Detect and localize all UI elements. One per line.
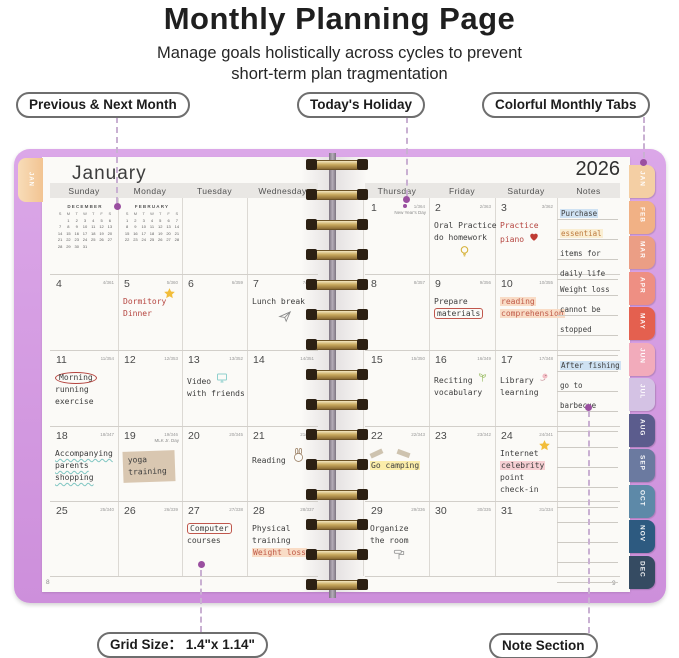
mini-calendar-day: 28 — [173, 237, 181, 242]
spiral-ring-cap — [306, 519, 317, 530]
notes-line: Purchase — [557, 200, 618, 220]
weekday-header-right: ThursdayFridaySaturdayNotes — [365, 183, 620, 198]
month-tab-nov: NOV — [629, 520, 655, 553]
handwritten-note: Go camping — [370, 448, 428, 472]
mini-calendar-day: 4 — [89, 218, 97, 223]
handwritten-note: Preparematerials — [434, 296, 494, 320]
callout-todays-holiday: Today's Holiday — [297, 92, 425, 118]
mini-calendar-day: 14 — [173, 224, 181, 229]
left-jan-tab: JAN — [18, 158, 43, 202]
day-number: 18 — [56, 430, 68, 442]
weekday-sunday: Sunday — [50, 183, 118, 198]
day-number: 29 — [371, 505, 383, 517]
mini-calendar-dow: T — [140, 211, 148, 216]
holiday-label: New Year's Day — [394, 210, 426, 215]
weekday-header-left: SundayMondayTuesdayWednesday — [50, 183, 318, 198]
mini-calendar-dow: W — [148, 211, 156, 216]
day-of-year-fraction: 13/352 — [229, 356, 243, 361]
handwritten-note: Oral Practicedo homework — [434, 220, 494, 262]
day-cell-10: 1010/355readingcomprehension — [495, 274, 557, 350]
spiral-ring — [306, 279, 368, 290]
mini-calendar-day: 25 — [89, 237, 97, 242]
mini-calendar-dow: M — [64, 211, 72, 216]
month-tab-jul: JUL — [629, 378, 655, 411]
spiral-ring — [306, 459, 368, 470]
day-cell-2: 22/363Oral Practicedo homework — [429, 198, 495, 274]
month-tab-label: SEP — [639, 455, 646, 476]
callout-colorful-monthly-tabs: Colorful Monthly Tabs — [482, 92, 650, 118]
spiral-ring-cap — [306, 429, 317, 440]
day-of-year-fraction: 22/343 — [411, 432, 425, 437]
day-cell-17: 1717/348Library learning — [495, 350, 557, 426]
day-of-year-fraction: 26/339 — [164, 507, 178, 512]
sprout-icon — [477, 376, 488, 385]
handwritten-note: Internetcelebritypointcheck-in — [500, 448, 556, 496]
handwritten-note: Morningrunningexercise — [55, 372, 117, 408]
handwritten-note: Library learning — [500, 372, 556, 399]
spiral-ring-cap — [357, 489, 368, 500]
spiral-ring-cap — [306, 369, 317, 380]
spiral-ring-cap — [357, 279, 368, 290]
mini-calendar-day: 3 — [81, 218, 89, 223]
callout-grid-size: Grid Size： 1.4"x 1.14" — [97, 632, 268, 658]
day-of-year-fraction: 15/350 — [411, 356, 425, 361]
mini-calendar-day: 17 — [81, 231, 89, 236]
day-of-year-fraction: 2/363 — [480, 204, 491, 209]
bunny-icon — [291, 456, 306, 465]
spiral-ring-cap — [357, 339, 368, 350]
handwritten-note: Video with friends — [187, 372, 246, 400]
day-of-year-fraction: 8/357 — [414, 280, 425, 285]
mini-calendar-day: 18 — [89, 231, 97, 236]
spiral-ring-cap — [357, 309, 368, 320]
day-number: 20 — [188, 430, 200, 442]
spiral-ring-bar — [312, 400, 362, 410]
mini-calendar-day: 23 — [131, 237, 139, 242]
mini-calendar-day: 8 — [64, 224, 72, 229]
mini-calendar-title: DECEMBER — [56, 204, 114, 209]
day-cell-22: 2222/343Go camping — [365, 426, 429, 501]
mini-calendar-day: 19 — [97, 231, 105, 236]
day-of-year-fraction: 1/364 — [414, 204, 425, 209]
mini-calendar-day: 23 — [73, 237, 81, 242]
spiral-ring — [306, 189, 368, 200]
mini-calendar-dow: M — [131, 211, 139, 216]
day-of-year-fraction: 16/349 — [477, 356, 491, 361]
spiral-ring-cap — [357, 399, 368, 410]
spiral-ring-bar — [312, 580, 362, 590]
mini-calendar-day: 12 — [156, 224, 164, 229]
mini-calendar-dow: F — [97, 211, 105, 216]
mini-calendar-day: 9 — [73, 224, 81, 229]
month-tab-oct: OCT — [629, 485, 655, 518]
day-number: 9 — [435, 278, 441, 290]
spiral-ring-bar — [312, 220, 362, 230]
month-tab-dec: DEC — [629, 556, 655, 589]
mini-calendar-day: 13 — [106, 224, 114, 229]
grid-hline — [50, 576, 318, 577]
day-of-year-fraction: 31/334 — [539, 507, 553, 512]
spiral-ring — [306, 489, 368, 500]
notes-line: stopped — [557, 316, 618, 336]
day-cell-1: 11/364New Year's Day — [365, 198, 429, 274]
mini-calendar-dow: S — [56, 211, 64, 216]
day-of-year-fraction: 27/338 — [229, 507, 243, 512]
mini-calendar-day: 26 — [156, 237, 164, 242]
mini-calendar-title: FEBRUARY — [123, 204, 181, 209]
day-cell-25: 2525/340 — [50, 501, 118, 576]
day-number: 23 — [435, 430, 447, 442]
month-tab-label: JUL — [639, 384, 646, 404]
mini-calendar-day: 16 — [131, 231, 139, 236]
mini-calendar-day: 10 — [140, 224, 148, 229]
day-number: 14 — [253, 354, 265, 366]
day-number: 21 — [253, 430, 265, 442]
day-number: 11 — [56, 354, 67, 366]
month-tab-jan: JAN — [629, 165, 655, 198]
day-of-year-fraction: 29/336 — [411, 507, 425, 512]
mini-calendar-february: FEBRUARYSMTWTFS1234567891011121314151617… — [123, 204, 181, 242]
day-number: 12 — [124, 354, 136, 366]
weekday-tuesday: Tuesday — [182, 183, 247, 198]
mini-calendar-dow: T — [156, 211, 164, 216]
leader-dot-note-section — [585, 404, 592, 411]
mini-calendar-day: 18 — [148, 231, 156, 236]
mini-calendar-day — [89, 244, 97, 249]
day-of-year-fraction: 5/360 — [167, 280, 178, 285]
left-jan-tab-label: JAN — [28, 172, 34, 187]
spiral-ring-cap — [357, 549, 368, 560]
holiday-label: MLK Jr. Day — [154, 438, 179, 443]
mini-calendar-day: 9 — [131, 224, 139, 229]
day-of-year-fraction: 25/340 — [100, 507, 114, 512]
spiral-ring-cap — [357, 579, 368, 590]
day-cell-16: 1616/349Reciting vocabulary — [429, 350, 495, 426]
heart-icon — [529, 235, 539, 244]
month-tab-label: MAY — [639, 313, 646, 335]
callout-note-section: Note Section — [489, 633, 598, 658]
mini-calendar-day: 20 — [106, 231, 114, 236]
spiral-ring — [306, 429, 368, 440]
day-of-year-fraction: 30/335 — [477, 507, 491, 512]
spiral-ring — [306, 219, 368, 230]
day-number: 27 — [188, 505, 200, 517]
spiral-ring — [306, 519, 368, 530]
mini-calendar-day: 25 — [148, 237, 156, 242]
day-cell-31: 3131/334 — [495, 501, 557, 576]
spiral-ring — [306, 579, 368, 590]
month-tab-label: JUN — [639, 348, 646, 369]
day-cell-26: 2626/339 — [118, 501, 182, 576]
day-number: 3 — [501, 202, 507, 214]
mini-calendar-day: 14 — [56, 231, 64, 236]
spiral-ring-cap — [306, 159, 317, 170]
mini-calendar-day: 26 — [97, 237, 105, 242]
mini-calendar-day: 2 — [73, 218, 81, 223]
mini-calendar-day: 20 — [164, 231, 172, 236]
leader-dot-grid-size — [198, 561, 205, 568]
spiral-ring-cap — [306, 459, 317, 470]
mini-calendar-day: 24 — [81, 237, 89, 242]
month-tab-apr: APR — [629, 272, 655, 305]
day-of-year-fraction: 9/356 — [480, 280, 491, 285]
mini-calendar-day: 7 — [173, 218, 181, 223]
day-number: 16 — [435, 354, 447, 366]
day-number: 10 — [501, 278, 513, 290]
day-cell-9: 99/356Preparematerials — [429, 274, 495, 350]
lightbulb-icon — [434, 245, 494, 262]
spiral-ring-bar — [312, 370, 362, 380]
spiral-ring-cap — [357, 249, 368, 260]
day-of-year-fraction: 17/348 — [539, 356, 553, 361]
page-title: Monthly Planning Page — [0, 1, 679, 37]
mini-calendar-dow: T — [89, 211, 97, 216]
notes-line: essential — [557, 220, 618, 240]
mini-calendar-day: 6 — [164, 218, 172, 223]
spiral-ring — [306, 549, 368, 560]
day-cell-8: 88/357 — [365, 274, 429, 350]
day-number: 19 — [124, 430, 136, 442]
roller-icon — [370, 548, 428, 566]
spiral-ring-bar — [312, 460, 362, 470]
day-cell-27: 2727/338Computercourses — [182, 501, 247, 576]
mini-calendar-day: 11 — [148, 224, 156, 229]
day-of-year-fraction: 6/359 — [232, 280, 243, 285]
mini-calendar-day: 5 — [156, 218, 164, 223]
month-tab-label: OCT — [639, 490, 646, 512]
day-of-year-fraction: 12/353 — [164, 356, 178, 361]
weekday-thursday: Thursday — [365, 183, 429, 198]
day-of-year-fraction: 20/345 — [229, 432, 243, 437]
spiral-ring-cap — [306, 549, 317, 560]
mini-calendar-day: 29 — [64, 244, 72, 249]
mini-calendar-dow: W — [81, 211, 89, 216]
month-tab-sep: SEP — [629, 449, 655, 482]
spiral-ring-cap — [306, 279, 317, 290]
handwritten-note: readingcomprehension — [500, 296, 556, 320]
day-number: 5 — [124, 278, 130, 290]
day-number: 31 — [501, 505, 513, 517]
notes-line: go to — [557, 372, 618, 392]
handwritten-note: yogatraining — [123, 448, 181, 482]
mini-calendar-day — [56, 218, 64, 223]
subtitle-line-1: Manage goals holistically across cycles … — [0, 44, 679, 63]
mini-calendar-day: 1 — [123, 218, 131, 223]
day-cell-30: 3030/335 — [429, 501, 495, 576]
spiral-ring — [306, 159, 368, 170]
mini-calendar-day: 12 — [97, 224, 105, 229]
notes-cell: Weight losscannot bestopped — [557, 276, 618, 348]
day-cell-20: 2020/345 — [182, 426, 247, 501]
mini-calendar-day — [97, 244, 105, 249]
day-cell-29: 2929/336Organizethe room — [365, 501, 429, 576]
notes-line: Weight loss — [557, 276, 618, 296]
mini-calendar-day: 28 — [56, 244, 64, 249]
spiral-ring — [306, 309, 368, 320]
spiral-ring-cap — [357, 429, 368, 440]
mini-calendar-day: 1 — [64, 218, 72, 223]
spiral-ring-cap — [306, 339, 317, 350]
month-tab-aug: AUG — [629, 414, 655, 447]
mini-calendar-day: 17 — [140, 231, 148, 236]
leader-dot-previous-next — [114, 203, 121, 210]
mini-calendar-day: 15 — [64, 231, 72, 236]
day-cell-14: 1414/351 — [247, 350, 318, 426]
day-cell-23: 2323/342 — [429, 426, 495, 501]
spiral-ring-cap — [357, 369, 368, 380]
mini-calendar-dow: F — [164, 211, 172, 216]
month-tab-feb: FEB — [629, 201, 655, 234]
spiral-ring-bar — [312, 280, 362, 290]
spiral-ring-cap — [306, 309, 317, 320]
mini-calendar-day: 6 — [106, 218, 114, 223]
spiral-ring-bar — [312, 160, 362, 170]
mini-calendar-day: 2 — [131, 218, 139, 223]
mini-calendar-day: 3 — [140, 218, 148, 223]
mini-calendar-day: 13 — [164, 224, 172, 229]
leader-line-monthly-tabs — [643, 117, 645, 158]
mini-calendar-day: 21 — [173, 231, 181, 236]
handwritten-note: Reciting vocabulary — [434, 372, 494, 399]
spiral-ring-cap — [306, 219, 317, 230]
spiral-ring-cap — [306, 579, 317, 590]
day-cell-28: 2828/337PhysicaltrainingWeight loss — [247, 501, 318, 576]
spiral-ring-bar — [312, 550, 362, 560]
day-number: 2 — [435, 202, 441, 214]
leader-dot-monthly-tabs — [640, 159, 647, 166]
leader-line-todays-holiday — [406, 117, 408, 196]
day-cell-15: 1515/350 — [365, 350, 429, 426]
day-number: 24 — [501, 430, 513, 442]
mini-calendar-dow: T — [73, 211, 81, 216]
handwritten-note: Organizethe room — [370, 523, 428, 566]
notes-line: items for — [557, 240, 618, 260]
month-title: January — [72, 163, 147, 185]
mini-calendar-day: 31 — [81, 244, 89, 249]
day-number: 6 — [188, 278, 194, 290]
mini-calendar-dow: S — [173, 211, 181, 216]
day-cell-11: 1111/354Morningrunningexercise — [50, 350, 118, 426]
spiral-ring-bar — [312, 190, 362, 200]
spiral-ring-bar — [312, 520, 362, 530]
mini-calendar-day: 27 — [106, 237, 114, 242]
handwritten-note: DormitoryDinner — [123, 296, 181, 320]
day-number: 1 — [371, 202, 377, 214]
day-of-year-fraction: 14/351 — [300, 356, 314, 361]
day-number: 15 — [371, 354, 383, 366]
day-number: 30 — [435, 505, 447, 517]
weekday-notes: Notes — [557, 183, 620, 198]
mini-calendar-day: 27 — [164, 237, 172, 242]
weekday-friday: Friday — [429, 183, 495, 198]
mini-calendar-day: 11 — [89, 224, 97, 229]
month-tab-label: NOV — [639, 525, 646, 547]
subtitle-line-2: short-term plan tragmentation — [0, 65, 679, 84]
spiral-ring-cap — [357, 459, 368, 470]
notes-cell: Purchaseessentialitems fordaily life — [557, 200, 618, 272]
mini-calendar-day: 22 — [64, 237, 72, 242]
holiday-marker-dot — [403, 204, 407, 208]
mini-calendar-day: 4 — [148, 218, 156, 223]
mini-calendar-day: 16 — [73, 231, 81, 236]
month-tab-label: APR — [639, 277, 646, 299]
leader-line-note-section — [588, 411, 590, 633]
day-number: 8 — [371, 278, 377, 290]
month-tab-mar: MAR — [629, 236, 655, 269]
day-number: 17 — [501, 354, 513, 366]
day-of-year-fraction: 10/355 — [539, 280, 553, 285]
day-cell-12: 1212/353 — [118, 350, 182, 426]
mini-calendar-day: 5 — [97, 218, 105, 223]
mini-calendar-grid: SMTWTFS123456789101112131415161718192021… — [56, 211, 114, 249]
month-tab-label: JAN — [639, 171, 646, 192]
spiral-ring — [306, 249, 368, 260]
weekday-monday: Monday — [118, 183, 182, 198]
mini-calendar-day — [106, 244, 114, 249]
day-cell-19: 1919/346MLK Jr. Dayyogatraining — [118, 426, 182, 501]
mini-calendar-december: DECEMBERSMTWTFS1234567891011121314151617… — [56, 204, 114, 249]
year-label: 2026 — [500, 158, 620, 181]
spiral-ring-bar — [312, 340, 362, 350]
month-tab-label: AUG — [639, 419, 646, 441]
mini-calendar-dow: S — [106, 211, 114, 216]
day-cell-5: 55/360DormitoryDinner — [118, 274, 182, 350]
day-number: 7 — [253, 278, 259, 290]
bird-icon — [539, 376, 550, 385]
mini-calendar-day: 30 — [73, 244, 81, 249]
month-tab-label: FEB — [639, 207, 646, 228]
spiral-ring — [306, 399, 368, 410]
page-number-left: 8 — [46, 579, 50, 586]
mini-calendar-day: 15 — [123, 231, 131, 236]
day-cell-18: 1818/347Accompanyingparentsshopping — [50, 426, 118, 501]
leader-dot-todays-holiday — [403, 196, 410, 203]
day-number: 22 — [371, 430, 383, 442]
mini-calendar-day: 22 — [123, 237, 131, 242]
day-number: 13 — [188, 354, 200, 366]
day-of-year-fraction: 3/362 — [542, 204, 553, 209]
spiral-ring-bar — [312, 310, 362, 320]
spiral-ring-cap — [357, 219, 368, 230]
handwritten-note: Practicepiano — [500, 220, 556, 246]
spiral-ring — [306, 369, 368, 380]
day-of-year-fraction: 23/342 — [477, 432, 491, 437]
notes-line: cannot be — [557, 296, 618, 316]
leader-line-previous-next — [116, 117, 118, 203]
spiral-ring-cap — [306, 189, 317, 200]
mini-calendar-day: 21 — [56, 237, 64, 242]
month-tab-jun: JUN — [629, 343, 655, 376]
day-cell-3: 33/362Practicepiano — [495, 198, 557, 274]
mini-calendar-grid: SMTWTFS123456789101112131415161718192021… — [123, 211, 181, 242]
day-number: 25 — [56, 505, 68, 517]
leader-line-grid-size — [200, 570, 202, 632]
day-of-year-fraction: 4/361 — [103, 280, 114, 285]
day-number: 26 — [124, 505, 136, 517]
weekday-saturday: Saturday — [495, 183, 557, 198]
month-tab-label: DEC — [639, 561, 646, 583]
day-cell-13: 1313/352Video with friends — [182, 350, 247, 426]
spiral-ring-cap — [306, 249, 317, 260]
mini-calendar-day: 8 — [123, 224, 131, 229]
day-of-year-fraction: 11/354 — [101, 356, 114, 361]
spiral-ring-bar — [312, 250, 362, 260]
day-cell-24: 2424/341Internetcelebritypointcheck-in — [495, 426, 557, 501]
day-number: 4 — [56, 278, 62, 290]
mini-calendar-day: 10 — [81, 224, 89, 229]
mini-calendar-dow: S — [123, 211, 131, 216]
monitor-icon — [216, 377, 228, 386]
